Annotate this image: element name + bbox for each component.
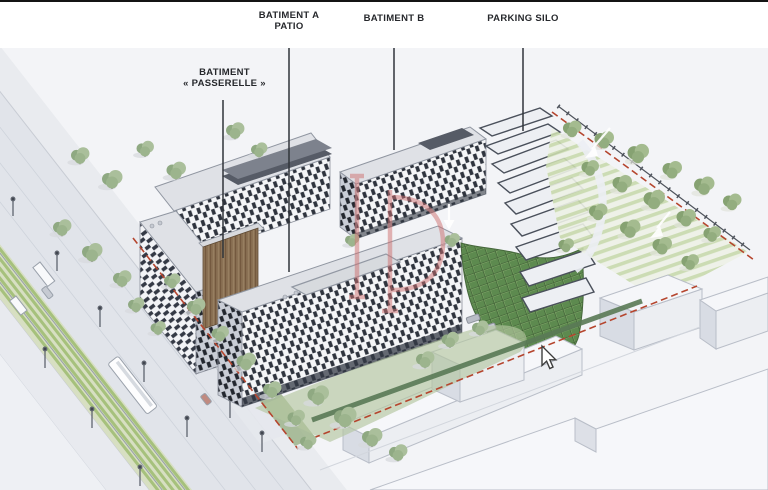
label-parking-silo: PARKING SILO bbox=[467, 13, 579, 24]
label-batiment-b: BATIMENT B bbox=[342, 13, 446, 24]
label-line: PARKING SILO bbox=[467, 13, 579, 24]
label-line: BATIMENT A bbox=[237, 10, 341, 21]
label-line: BATIMENT B bbox=[342, 13, 446, 24]
site-plan-render bbox=[0, 0, 768, 490]
top-border bbox=[0, 0, 768, 2]
label-line: PATIO bbox=[237, 21, 341, 32]
label-batiment-a-patio: BATIMENT A PATIO bbox=[237, 10, 341, 33]
screenshot-root: BATIMENT « PASSERELLE » BATIMENT A PATIO… bbox=[0, 0, 768, 490]
label-line: BATIMENT bbox=[152, 67, 297, 78]
label-line: « PASSERELLE » bbox=[152, 78, 297, 89]
label-batiment-passerelle: BATIMENT « PASSERELLE » bbox=[152, 67, 297, 90]
